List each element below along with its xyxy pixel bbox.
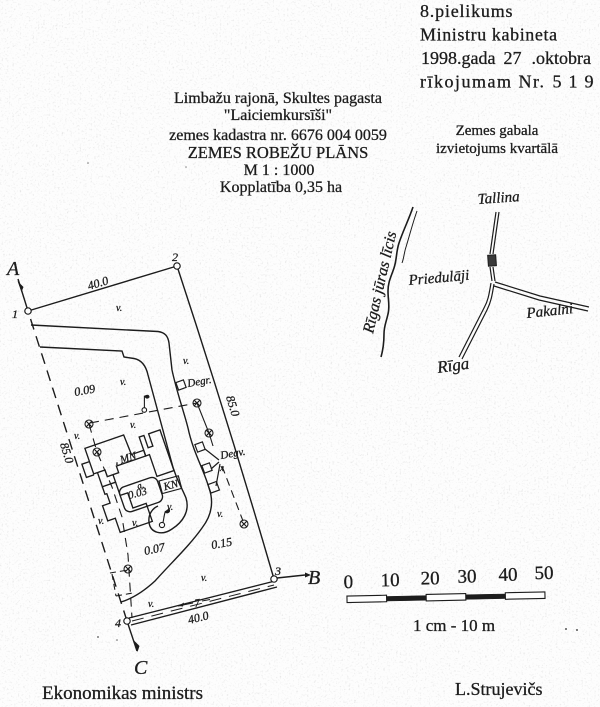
svg-text:M 1 : 1000: M 1 : 1000 [244, 162, 315, 179]
svg-text:v.: v. [120, 377, 126, 388]
svg-text:v.: v. [132, 518, 138, 529]
svg-text:40: 40 [498, 564, 517, 585]
svg-text:v.: v. [201, 573, 207, 584]
svg-text:20: 20 [420, 568, 439, 589]
svg-text:0: 0 [343, 572, 353, 593]
svg-text:8.pielikums: 8.pielikums [420, 1, 513, 21]
svg-text:Kopplatība 0,35 ha: Kopplatība 0,35 ha [220, 179, 342, 196]
svg-text:1: 1 [12, 307, 18, 321]
svg-text:Ministru kabineta: Ministru kabineta [420, 25, 558, 45]
svg-text:ZEMES ROBEŽU PLĀNS: ZEMES ROBEŽU PLĀNS [188, 143, 369, 162]
svg-text:Ekonomikas ministrs: Ekonomikas ministrs [42, 683, 203, 704]
svg-text:L.Strujevičs: L.Strujevičs [455, 679, 543, 699]
svg-text:B: B [308, 567, 320, 589]
svg-text:zemes kadastra nr. 6676 004 00: zemes kadastra nr. 6676 004 0059 [169, 127, 387, 144]
svg-text:x: x [219, 463, 224, 473]
svg-text:50: 50 [534, 563, 553, 584]
svg-text:C: C [134, 657, 148, 679]
svg-text:A: A [5, 258, 20, 280]
svg-text:3: 3 [274, 564, 281, 578]
svg-text:izvietojums kvartālā: izvietojums kvartālā [436, 141, 558, 157]
svg-text:"Laiciemkursīši": "Laiciemkursīši" [224, 107, 332, 124]
svg-text:4: 4 [115, 616, 121, 630]
svg-text:rīkojumam Nr.519: rīkojumam Nr.519 [420, 72, 600, 92]
svg-text:10: 10 [380, 570, 399, 591]
svg-text:30: 30 [457, 566, 476, 587]
svg-text:2: 2 [172, 250, 178, 264]
svg-text:Tallina: Tallina [477, 189, 520, 208]
svg-text:v.: v. [130, 420, 136, 431]
svg-text:v.: v. [148, 599, 154, 610]
svg-text:v.: v. [217, 509, 223, 520]
svg-text:v.: v. [116, 303, 122, 314]
svg-text:Limbažu rajonā, Skultes pagast: Limbažu rajonā, Skultes pagasta [174, 90, 382, 107]
svg-text:v.: v. [74, 431, 80, 442]
svg-text:v.: v. [183, 356, 189, 367]
svg-text:Zemes gabala: Zemes gabala [456, 123, 539, 139]
svg-text:1998.gada27.oktobra: 1998.gada27.oktobra [421, 48, 591, 68]
svg-text:v.: v. [167, 502, 173, 513]
svg-text:v.: v. [98, 516, 104, 527]
svg-text:1 cm - 10 m: 1 cm - 10 m [413, 616, 495, 635]
